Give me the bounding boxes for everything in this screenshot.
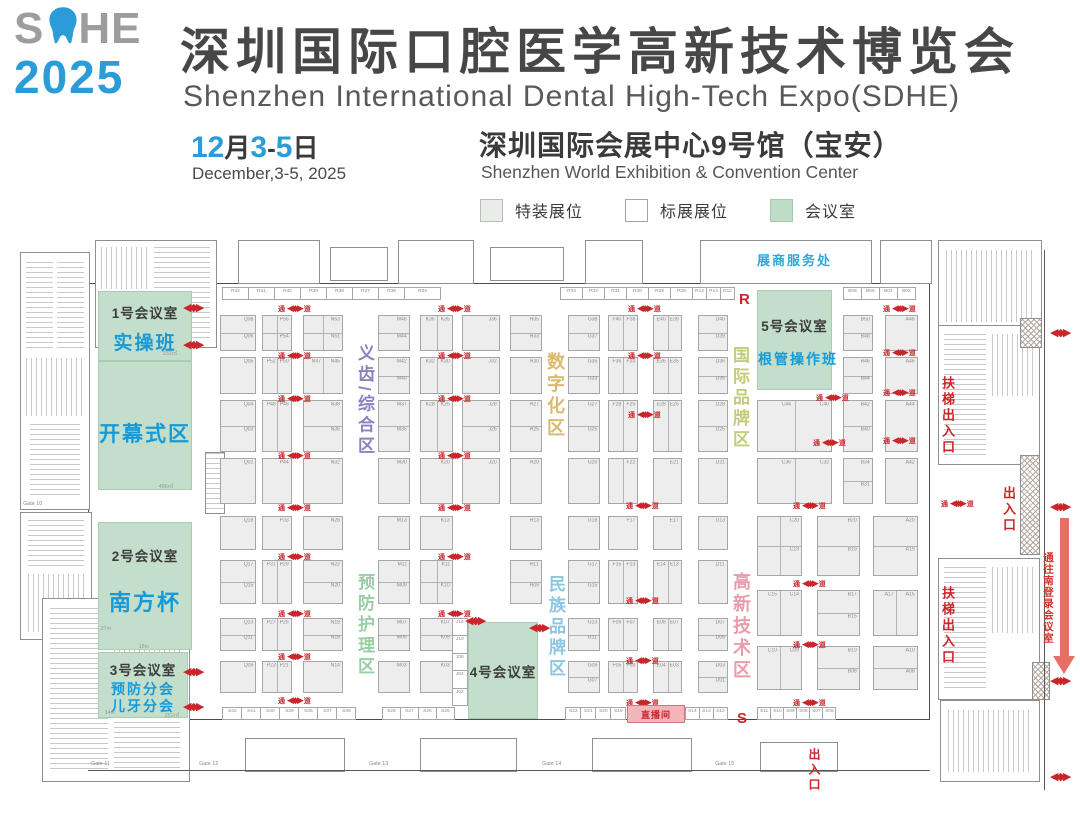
booth: K32K30 bbox=[420, 357, 453, 394]
building-structure bbox=[57, 262, 84, 350]
legend-item: 特装展位 bbox=[480, 198, 583, 222]
booth: M30 bbox=[378, 458, 410, 504]
building-structure bbox=[880, 240, 932, 284]
gate-label: Gate 12 bbox=[199, 761, 218, 766]
building-structure bbox=[26, 262, 53, 350]
booth: S41 bbox=[241, 707, 261, 720]
aisle-marker: 通◀◆▶道 bbox=[278, 350, 311, 361]
booth: K13 bbox=[420, 516, 453, 550]
aisle-marker: 通◀◆▶道 bbox=[816, 392, 849, 403]
booth: S06 bbox=[822, 707, 836, 720]
booth: C36C32 bbox=[757, 458, 832, 504]
booth: S22 bbox=[565, 707, 581, 720]
gate-label: Gate 10 bbox=[23, 501, 42, 506]
room-name: 1号会议室 bbox=[99, 302, 191, 322]
booth: S39 bbox=[279, 707, 299, 720]
booth: C20C19 bbox=[757, 516, 802, 576]
room-name: 5号会议室 bbox=[758, 315, 831, 335]
booth: S20 bbox=[595, 707, 611, 720]
aisle-marker: 通◀◆▶道 bbox=[626, 500, 659, 511]
booth: R13 bbox=[706, 287, 721, 300]
room-3: 3号会议室预防分会儿牙分会 bbox=[98, 652, 188, 718]
booth: D07D05 bbox=[698, 618, 728, 651]
booth: H20 bbox=[510, 458, 542, 504]
room-name: 2号会议室 bbox=[99, 545, 191, 565]
booth: S42 bbox=[222, 707, 242, 720]
booth: S26 bbox=[418, 707, 437, 720]
legend-label: 会议室 bbox=[805, 198, 856, 222]
building-structure bbox=[592, 738, 692, 772]
booth: J20 bbox=[462, 458, 500, 504]
date-part: 日 bbox=[292, 133, 318, 163]
booth: A20A19 bbox=[873, 516, 918, 576]
booth: R28 bbox=[670, 287, 693, 300]
booth: Q08Q06 bbox=[220, 315, 256, 351]
room-5: 5号会议室根管操作班 bbox=[757, 290, 832, 390]
booth: F28F25 bbox=[608, 400, 638, 452]
logo-year: 2025 bbox=[14, 54, 184, 100]
booth: N53N51 bbox=[303, 315, 343, 351]
venue-en: Shenzhen World Exhibition & Convention C… bbox=[481, 162, 858, 183]
booth: H11H09 bbox=[510, 560, 542, 604]
booth: S37 bbox=[317, 707, 337, 720]
aisle-marker: 通◀◆▶道 bbox=[626, 655, 659, 666]
door-marker: ◀◆▶ bbox=[183, 700, 202, 713]
aisle-marker: 通◀◆▶道 bbox=[278, 502, 311, 513]
booth: R36 bbox=[378, 287, 405, 300]
room-1: 1号会议室实操班 bbox=[98, 291, 192, 361]
booth: D03D01 bbox=[698, 661, 728, 693]
venue-cn: 深圳国际会展中心9号馆（宝安） bbox=[479, 124, 902, 164]
booth: G38G37 bbox=[568, 315, 600, 351]
booth: Q13Q11 bbox=[220, 618, 256, 651]
date-part: 3 bbox=[250, 131, 267, 164]
booth: R30 bbox=[626, 287, 649, 300]
booth: N47N45 bbox=[303, 357, 343, 394]
building-structure bbox=[398, 240, 474, 284]
aisle-marker: 通◀◆▶道 bbox=[438, 350, 471, 361]
aisle-marker: 通◀◆▶道 bbox=[278, 393, 311, 404]
booth: D28D25 bbox=[698, 400, 728, 452]
booth: K28K25 bbox=[420, 400, 453, 452]
legend-swatch bbox=[625, 199, 648, 222]
door-marker: ◀◆▶ bbox=[1050, 500, 1069, 513]
wall-line bbox=[1044, 250, 1045, 790]
aisle-marker: 通◀◆▶道 bbox=[941, 498, 974, 509]
booth: N18N16 bbox=[303, 618, 343, 651]
booth: D40D39 bbox=[698, 315, 728, 351]
room-program: 开幕式区 bbox=[99, 418, 191, 448]
booth: S13 bbox=[699, 707, 714, 720]
booth: K11K10 bbox=[420, 560, 453, 604]
booth: H27H25 bbox=[510, 400, 542, 452]
booth: H35H33 bbox=[510, 315, 542, 351]
booth: B10B08 bbox=[817, 646, 860, 690]
booth: R33 bbox=[560, 287, 583, 300]
aisle-marker: 通◀◆▶道 bbox=[278, 695, 311, 706]
dimension-label: 14m bbox=[105, 710, 116, 715]
booth: K03 bbox=[420, 661, 453, 693]
booth: D11 bbox=[698, 560, 728, 604]
booth: S27 bbox=[400, 707, 419, 720]
booth: B20B19 bbox=[817, 516, 860, 576]
booth: A10A08 bbox=[873, 646, 918, 690]
aisle-marker: 通◀◆▶道 bbox=[278, 651, 311, 662]
booth: F36F33 bbox=[608, 357, 638, 394]
tooth-icon bbox=[46, 5, 80, 47]
gate-label: Gate 15 bbox=[715, 761, 734, 766]
building-structure bbox=[946, 250, 1034, 322]
date-part: 月 bbox=[224, 133, 250, 163]
booth: E40E39 bbox=[653, 315, 682, 351]
dimension-label: 486㎡ bbox=[159, 481, 173, 489]
legend-swatch bbox=[770, 199, 793, 222]
legend: 特装展位标展展位会议室 bbox=[480, 198, 856, 222]
exit-label: 出入口 bbox=[806, 748, 823, 793]
aisle-marker: 通◀◆▶道 bbox=[438, 450, 471, 461]
booth: R38 bbox=[326, 287, 353, 300]
booth: B46B44 bbox=[843, 357, 873, 394]
building-structure bbox=[330, 247, 388, 281]
building-structure bbox=[948, 710, 1030, 772]
exit-label: 出入口 bbox=[999, 486, 1018, 534]
room-program: 根管操作班 bbox=[758, 349, 831, 369]
route-letter: R bbox=[739, 291, 750, 308]
booth: S21 bbox=[580, 707, 596, 720]
aisle-marker: 通◀◆▶道 bbox=[438, 393, 471, 404]
zone-label: 义齿/综合区 bbox=[352, 344, 377, 458]
booth: S09 bbox=[783, 707, 797, 720]
booth: G13G11 bbox=[568, 618, 600, 651]
booth: A42 bbox=[885, 458, 918, 504]
booth: G09G07 bbox=[568, 661, 600, 693]
booth: P31P29 bbox=[262, 560, 292, 604]
door-marker: ◀◆▶ bbox=[1050, 770, 1069, 783]
booth: K20 bbox=[420, 458, 453, 504]
exit-label: 扶梯出入口 bbox=[938, 586, 957, 666]
booth: B17B15 bbox=[817, 590, 860, 636]
building-structure bbox=[101, 247, 149, 289]
aisle-marker: 通◀◆▶道 bbox=[626, 595, 659, 606]
booth: M13 bbox=[378, 516, 410, 550]
booth: J08 bbox=[452, 653, 468, 671]
booth: J28J26 bbox=[462, 400, 500, 452]
exhibitor-service-desk-label: 展商服务处 bbox=[757, 250, 832, 269]
aisle-marker: 通◀◆▶道 bbox=[793, 697, 826, 708]
booth: Q18 bbox=[220, 516, 256, 550]
aisle-marker: 通◀◆▶道 bbox=[883, 435, 916, 446]
booth: Q05 bbox=[220, 357, 256, 394]
booth: B42B40 bbox=[843, 400, 873, 452]
opening-area: 开幕式区 bbox=[98, 361, 192, 490]
title-chinese: 深圳国际口腔医学高新技术博览会 bbox=[180, 12, 1020, 84]
gate-label: Gate 11 bbox=[91, 761, 110, 766]
building-structure bbox=[490, 247, 564, 281]
booth: P48P46 bbox=[262, 400, 292, 452]
aisle-marker: 通◀◆▶道 bbox=[438, 502, 471, 513]
door-marker: ◀◆▶ bbox=[1050, 674, 1069, 687]
booth: M37M35 bbox=[378, 400, 410, 452]
legend-item: 会议室 bbox=[770, 198, 856, 222]
building-structure bbox=[585, 240, 643, 284]
event-dates-en: December,3-5, 2025 bbox=[192, 164, 346, 184]
booth: B08 bbox=[843, 287, 862, 300]
booth: B34B31 bbox=[843, 458, 873, 504]
dimension-label: 252㎡ bbox=[165, 710, 179, 718]
booth: F17 bbox=[608, 516, 638, 550]
building-structure bbox=[1020, 455, 1040, 555]
south-route-label: 通往南登录会议室 bbox=[1041, 552, 1056, 644]
booth: B06 bbox=[861, 287, 880, 300]
aisle-marker: 通◀◆▶道 bbox=[438, 303, 471, 314]
booth: D36D35 bbox=[698, 357, 728, 394]
room-program: 南方杯 bbox=[99, 585, 191, 617]
booth: E17 bbox=[653, 516, 682, 550]
booth: G35G33 bbox=[568, 357, 600, 394]
booth: H13 bbox=[510, 516, 542, 550]
booth: S25 bbox=[436, 707, 455, 720]
building-structure bbox=[26, 358, 82, 416]
booth: P23P21 bbox=[262, 661, 292, 693]
booth: R29 bbox=[648, 287, 671, 300]
booth: N14 bbox=[303, 661, 343, 693]
date-part: - bbox=[267, 133, 276, 163]
booth: D21 bbox=[698, 458, 728, 504]
door-marker: ◀◆▶ bbox=[183, 338, 202, 351]
booth: S08 bbox=[796, 707, 810, 720]
booth: J36 bbox=[462, 315, 500, 351]
booth: D13 bbox=[698, 516, 728, 550]
building-structure bbox=[245, 738, 345, 772]
booth: R39 bbox=[300, 287, 327, 300]
building-structure bbox=[760, 742, 838, 772]
booth: R31 bbox=[604, 287, 627, 300]
booth: M46M44 bbox=[378, 315, 410, 351]
booth: J02 bbox=[452, 688, 468, 706]
dimension-label: 18m bbox=[139, 644, 150, 649]
aisle-marker: 通◀◆▶道 bbox=[793, 639, 826, 650]
aisle-marker: 通◀◆▶道 bbox=[883, 387, 916, 398]
booth: P27P25 bbox=[262, 618, 292, 651]
zone-label: 国际品牌区 bbox=[727, 346, 752, 451]
booth: N22N20 bbox=[303, 560, 343, 604]
gate-label: Gate 13 bbox=[369, 761, 388, 766]
booth: J10 bbox=[452, 635, 468, 653]
booth: R34 bbox=[404, 287, 441, 300]
door-marker: ◀◆▶ bbox=[183, 665, 202, 678]
booth: G18 bbox=[568, 516, 600, 550]
booth: E21 bbox=[653, 458, 682, 504]
aisle-marker: 通◀◆▶道 bbox=[278, 608, 311, 619]
zone-label: 数字化区 bbox=[542, 352, 568, 440]
booth: G17G15 bbox=[568, 560, 600, 604]
aisle-marker: 通◀◆▶道 bbox=[278, 450, 311, 461]
booth: J32 bbox=[462, 357, 500, 394]
booth: F21 bbox=[608, 458, 638, 504]
aisle-marker: 通◀◆▶道 bbox=[793, 500, 826, 511]
booth: F40F38 bbox=[608, 315, 638, 351]
booth: P56P54 bbox=[262, 315, 292, 351]
booth: B04 bbox=[879, 287, 898, 300]
booth: R37 bbox=[352, 287, 379, 300]
sdhe-logo: SHE 2025 bbox=[14, 6, 184, 100]
title-english: Shenzhen International Dental High-Tech … bbox=[183, 80, 960, 114]
booth: S07 bbox=[809, 707, 823, 720]
booth: A17A15 bbox=[873, 590, 918, 636]
aisle-marker: 通◀◆▶道 bbox=[438, 551, 471, 562]
booth: R42 bbox=[222, 287, 249, 300]
building-structure bbox=[238, 240, 320, 284]
room-2: 2号会议室南方杯 bbox=[98, 522, 192, 650]
booth: P33 bbox=[262, 516, 292, 550]
booth: M03 bbox=[378, 661, 410, 693]
legend-swatch bbox=[480, 199, 503, 222]
booth: Q09 bbox=[220, 661, 256, 693]
booth: S38 bbox=[298, 707, 318, 720]
booth: R40 bbox=[274, 287, 301, 300]
room-name: 4号会议室 bbox=[469, 661, 537, 681]
south-route-arrowhead bbox=[1053, 656, 1075, 674]
booth: C15C14 bbox=[757, 590, 802, 636]
booth: M11M09 bbox=[378, 560, 410, 604]
aisle-marker: 通◀◆▶道 bbox=[628, 303, 661, 314]
booth: N38N36 bbox=[303, 400, 343, 452]
booth: R12 bbox=[720, 287, 735, 300]
booth: M07M05 bbox=[378, 618, 410, 651]
booth: Q04Q03 bbox=[220, 400, 256, 452]
booth: S19 bbox=[610, 707, 626, 720]
booth: C10C09 bbox=[757, 646, 802, 690]
booth: R32 bbox=[582, 287, 605, 300]
building-structure bbox=[992, 567, 1036, 633]
booth: M42M40 bbox=[378, 357, 410, 394]
door-marker: ◀◆▶ bbox=[529, 621, 548, 634]
building-structure bbox=[1032, 662, 1050, 700]
building-structure bbox=[420, 738, 517, 772]
booth: E36E35 bbox=[653, 357, 682, 394]
building-structure bbox=[30, 424, 80, 498]
booth: S36 bbox=[336, 707, 356, 720]
wall-line bbox=[88, 770, 930, 771]
booth: F09F07 bbox=[608, 618, 638, 651]
booth: G27G25 bbox=[568, 400, 600, 452]
dimension-label: 232㎡ bbox=[163, 348, 177, 356]
booth: Q17Q15 bbox=[220, 560, 256, 604]
date-part: 12 bbox=[191, 131, 224, 164]
booth: N28 bbox=[303, 516, 343, 550]
door-marker: ◀◆▶ bbox=[183, 301, 202, 314]
booth: S14 bbox=[685, 707, 700, 720]
legend-label: 标展展位 bbox=[660, 198, 728, 222]
booth: S40 bbox=[260, 707, 280, 720]
booth: J04 bbox=[452, 670, 468, 688]
booth: A48 bbox=[885, 315, 918, 351]
legend-label: 特装展位 bbox=[515, 198, 583, 222]
booth: S11 bbox=[757, 707, 771, 720]
gate-label: Gate 14 bbox=[542, 761, 561, 766]
booth: E08E07 bbox=[653, 618, 682, 651]
aisle-marker: 通◀◆▶道 bbox=[628, 350, 661, 361]
exit-label: 扶梯出入口 bbox=[938, 376, 957, 456]
room-4: 4号会议室 bbox=[468, 622, 538, 719]
aisle-marker: 通◀◆▶道 bbox=[278, 303, 311, 314]
booth: R14 bbox=[692, 287, 707, 300]
south-route-arrow bbox=[1060, 518, 1069, 656]
building-structure bbox=[1020, 318, 1042, 348]
booth: B02 bbox=[897, 287, 916, 300]
booth: H30 bbox=[510, 357, 542, 394]
aisle-marker: 通◀◆▶道 bbox=[278, 551, 311, 562]
room-name: 3号会议室 bbox=[99, 659, 187, 679]
route-letter: S bbox=[737, 710, 747, 727]
aisle-marker: 通◀◆▶道 bbox=[883, 303, 916, 314]
legend-item: 标展展位 bbox=[625, 198, 728, 222]
booth: G20 bbox=[568, 458, 600, 504]
dimension-label: 27m bbox=[101, 626, 112, 631]
booth: K07K05 bbox=[420, 618, 453, 651]
expo-floorplan-poster: { "header": { "logo": { "s": "S", "he": … bbox=[0, 0, 1080, 818]
aisle-marker: 通◀◆▶道 bbox=[813, 437, 846, 448]
date-part: 5 bbox=[276, 131, 293, 164]
booth: B50B48 bbox=[843, 315, 873, 351]
booth: S28 bbox=[382, 707, 401, 720]
zone-label: 预防护理区 bbox=[352, 573, 377, 678]
booth: S10 bbox=[770, 707, 784, 720]
building-structure bbox=[28, 520, 84, 568]
zone-label: 高新技术区 bbox=[728, 572, 754, 682]
booth: R41 bbox=[248, 287, 275, 300]
booth: Q02 bbox=[220, 458, 256, 504]
event-dates-cn: 12月3-5日 bbox=[191, 128, 318, 165]
booth: P44 bbox=[262, 458, 292, 504]
logo-wordmark: SHE bbox=[14, 6, 184, 52]
booth: S12 bbox=[713, 707, 728, 720]
booth: K36K35 bbox=[420, 315, 453, 351]
booth: N32 bbox=[303, 458, 343, 504]
floor-plan: R42R41R40R39R38R37R36R34R33R32R31R30R29R… bbox=[0, 232, 1080, 818]
door-marker: ◀◆▶ bbox=[1050, 326, 1069, 339]
booth: P52P50 bbox=[262, 357, 292, 394]
aisle-marker: 通◀◆▶道 bbox=[628, 409, 661, 420]
door-marker: ◀◆▶ bbox=[465, 614, 484, 627]
live-room: 直播间 bbox=[627, 705, 685, 723]
aisle-marker: 通◀◆▶道 bbox=[883, 347, 916, 358]
booth: E28E25 bbox=[653, 400, 682, 452]
aisle-marker: 通◀◆▶道 bbox=[793, 578, 826, 589]
